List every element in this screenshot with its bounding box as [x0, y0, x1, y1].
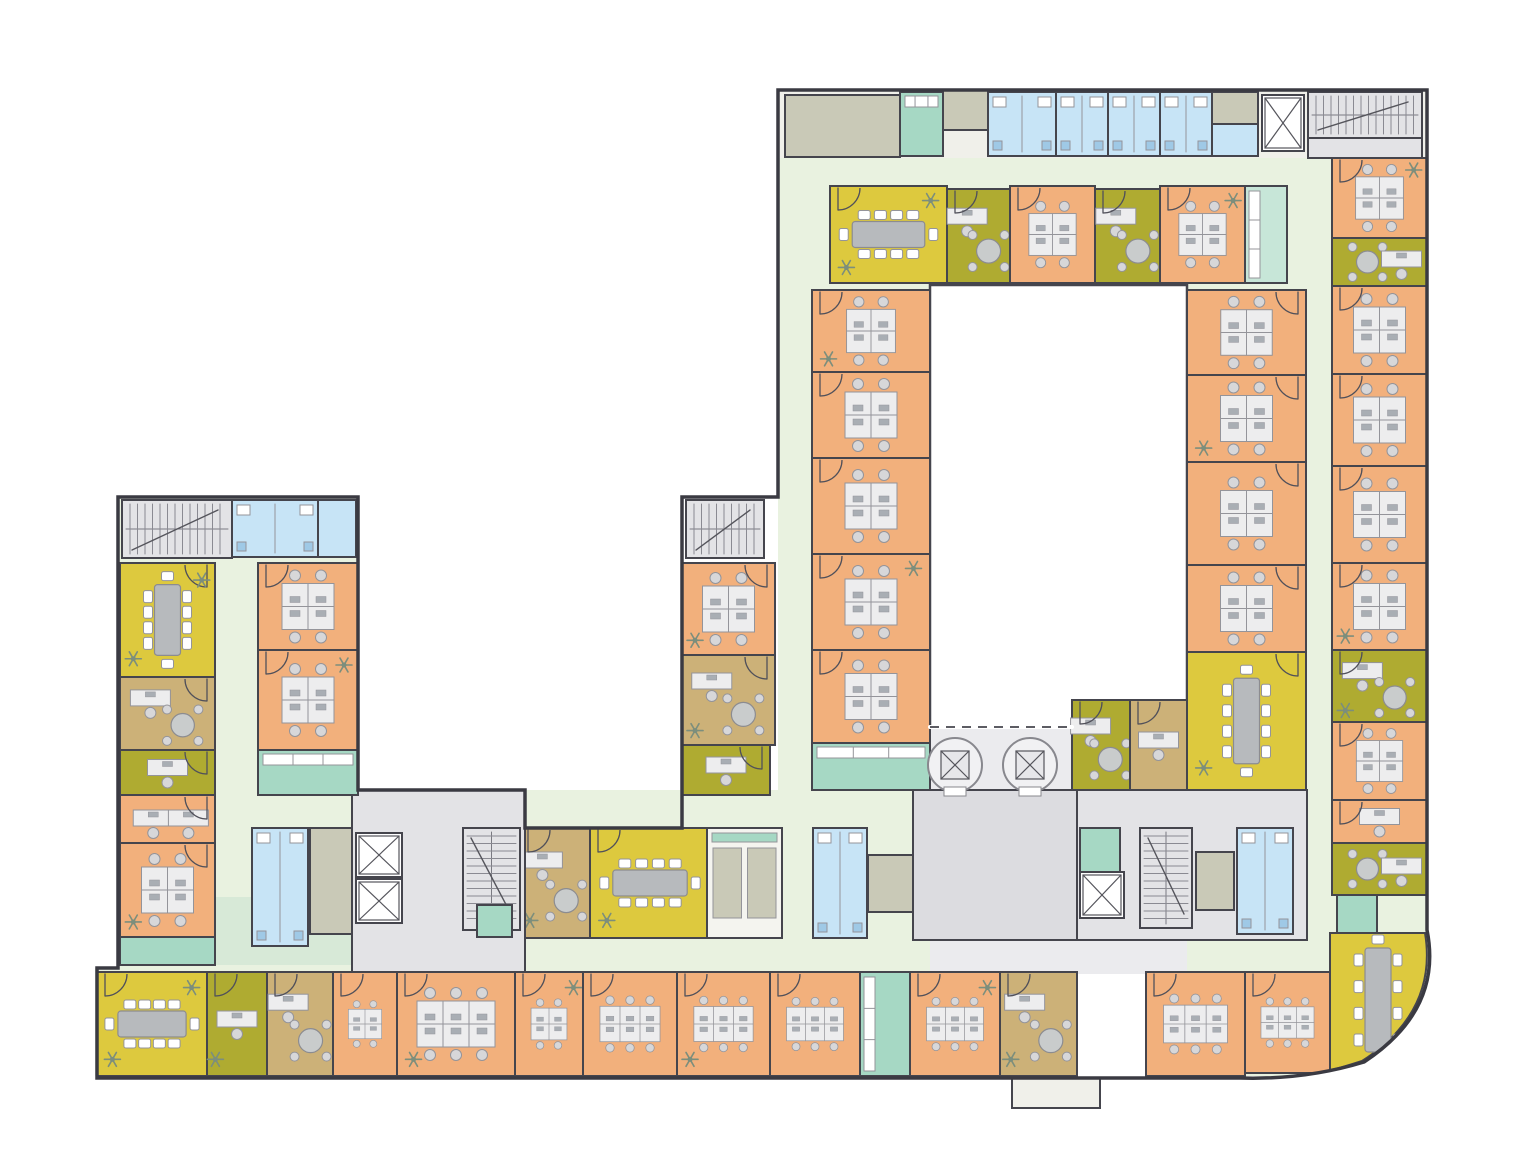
- office-r7: [1332, 800, 1427, 843]
- office-e1: [1187, 290, 1306, 375]
- tan-office-ct: [1130, 700, 1187, 790]
- office-lw2: [120, 843, 215, 937]
- office-lw1: [120, 795, 215, 843]
- olive-office-ct: [1071, 700, 1131, 790]
- office-lwi1: [258, 563, 358, 650]
- olive-office-ne1: [947, 189, 1010, 283]
- wc-core-r: [1237, 828, 1293, 934]
- service-c: [310, 828, 352, 934]
- service-box-1: [943, 90, 988, 130]
- office-ne2: [1160, 186, 1245, 283]
- service-box-2: [1212, 92, 1258, 124]
- stair-lw: [122, 500, 232, 558]
- office-b1: [333, 972, 397, 1076]
- olive-office-ne2: [1095, 189, 1160, 283]
- office-b2: [397, 972, 515, 1076]
- patch-entry-recess: [1077, 974, 1146, 1076]
- service-room-top: [785, 95, 900, 157]
- tan-office-sw: [267, 972, 333, 1076]
- service-mid-2: [868, 855, 913, 912]
- office-e2: [1187, 375, 1306, 462]
- office-r5: [1332, 563, 1427, 650]
- conf-room-mid: [590, 828, 710, 938]
- elevator-top: [1262, 95, 1304, 151]
- tan-office-b: [1000, 972, 1077, 1076]
- tan-office-w: [120, 677, 215, 750]
- olive-office-r2: [1332, 843, 1427, 895]
- office-ms: [682, 563, 775, 655]
- service-core-r: [1196, 852, 1234, 910]
- olive-office-r0: [1332, 238, 1427, 286]
- conf-room-ne: [830, 186, 947, 283]
- stair-r: [1140, 828, 1192, 928]
- courtyard: [930, 285, 1187, 727]
- office-r6: [1332, 722, 1427, 800]
- lobby: [913, 790, 1077, 940]
- wc-top-1: [988, 92, 1056, 156]
- olive-office-ms: [682, 745, 770, 795]
- wc-top-3: [1108, 92, 1160, 156]
- office-lwi2: [258, 650, 358, 750]
- office-b6: [770, 972, 860, 1076]
- office-b4: [583, 972, 677, 1076]
- office-b7: [910, 972, 1000, 1076]
- office-b8: [1146, 972, 1245, 1076]
- pantry-ne: [1245, 186, 1287, 283]
- office-w1: [812, 290, 930, 372]
- floor-plan: [0, 0, 1527, 1162]
- office-b3: [515, 972, 583, 1076]
- office-r2: [1332, 286, 1427, 374]
- tan-office-ms: [682, 655, 775, 745]
- office-e4: [1187, 565, 1306, 652]
- office-r4: [1332, 466, 1427, 563]
- wc-lw: [232, 500, 318, 557]
- pantry-b: [860, 972, 910, 1076]
- office-ne1: [1010, 186, 1095, 283]
- landing-top-right: [1308, 138, 1422, 158]
- conf-room-sw: [97, 972, 207, 1076]
- elevator-c2: [356, 879, 402, 923]
- olive-office-r1: [1332, 650, 1427, 722]
- olive-office-w: [120, 750, 215, 795]
- kitchen-top: [900, 92, 943, 156]
- office-b9: [1245, 972, 1330, 1073]
- wc-top-5: [1212, 124, 1258, 156]
- entrance-porch: [1012, 1078, 1100, 1108]
- stair-ms: [686, 500, 764, 558]
- tan-office-mid: [520, 828, 590, 938]
- wc-mid: [813, 828, 867, 938]
- stair-top-right: [1308, 92, 1422, 138]
- office-r3: [1332, 374, 1427, 466]
- wc-top-2: [1056, 92, 1108, 156]
- office-b5: [677, 972, 770, 1076]
- elevator-c1: [356, 833, 402, 877]
- office-w4: [812, 554, 930, 650]
- service-mid: [707, 828, 782, 938]
- office-w2: [812, 372, 930, 458]
- office-e3: [1187, 462, 1306, 565]
- office-w5: [812, 650, 930, 743]
- pantry-core-r: [1080, 828, 1120, 872]
- conf-room-e: [1187, 652, 1306, 790]
- office-r1: [1332, 158, 1427, 238]
- pantry-lwi: [258, 750, 358, 795]
- olive-office-sw: [207, 972, 267, 1076]
- conf-room-w: [120, 563, 215, 677]
- pantry-lw: [120, 937, 215, 965]
- wc-c: [252, 828, 308, 946]
- elevator-r: [1080, 872, 1124, 918]
- office-w3: [812, 458, 930, 554]
- patch-outside-left: [95, 828, 118, 968]
- pantry-core-c: [477, 905, 512, 937]
- wc-top-4: [1160, 92, 1212, 156]
- pantry-r: [1337, 895, 1377, 933]
- pantry-w: [812, 743, 930, 790]
- floor-plan-canvas: [0, 0, 1527, 1162]
- wc-lw2: [318, 500, 356, 557]
